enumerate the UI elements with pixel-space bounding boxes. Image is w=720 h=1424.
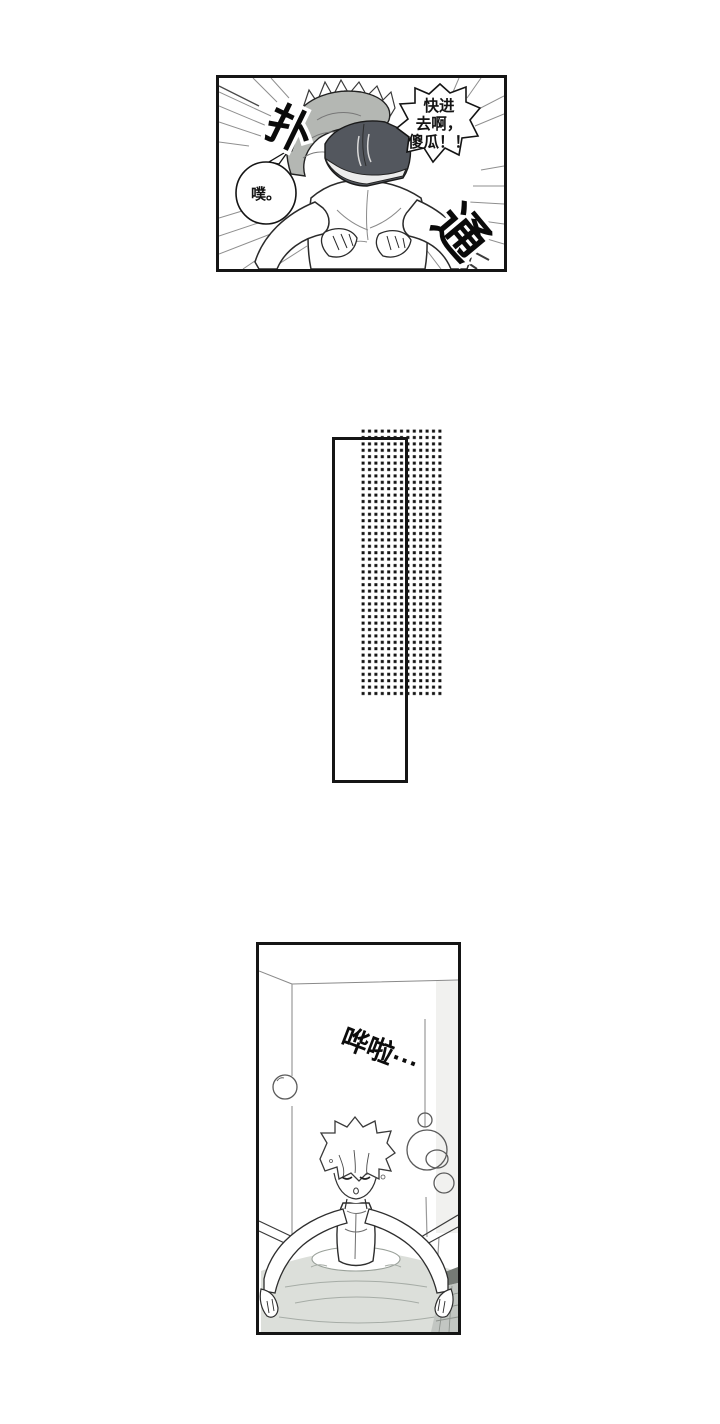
panel-middle-empty <box>332 437 408 783</box>
small-bubble-text: 噗。 <box>251 185 281 203</box>
shout-line-1: 快进 <box>423 96 455 115</box>
shorts-on-head <box>325 121 410 186</box>
panel-top: 噗。 快进 去啊， 傻瓜！！ 扑 通 <box>216 75 507 272</box>
bather-hair <box>320 1117 395 1181</box>
water-drop <box>381 1175 385 1179</box>
panel-bottom-art: 哗啦··· <box>259 945 458 1332</box>
panel-bottom: 哗啦··· <box>256 942 461 1335</box>
shout-line-2: 去啊， <box>416 114 463 133</box>
manga-page: 噗。 快进 去啊， 傻瓜！！ 扑 通 <box>0 0 720 1424</box>
panel-top-art: 噗。 快进 去啊， 傻瓜！！ 扑 通 <box>219 78 504 269</box>
shout-line-3: 傻瓜！！ <box>408 132 470 151</box>
speech-bubble-shout: 快进 去啊， 傻瓜！！ <box>397 84 480 162</box>
sfx-splash-text: 哗啦··· <box>337 1022 424 1080</box>
